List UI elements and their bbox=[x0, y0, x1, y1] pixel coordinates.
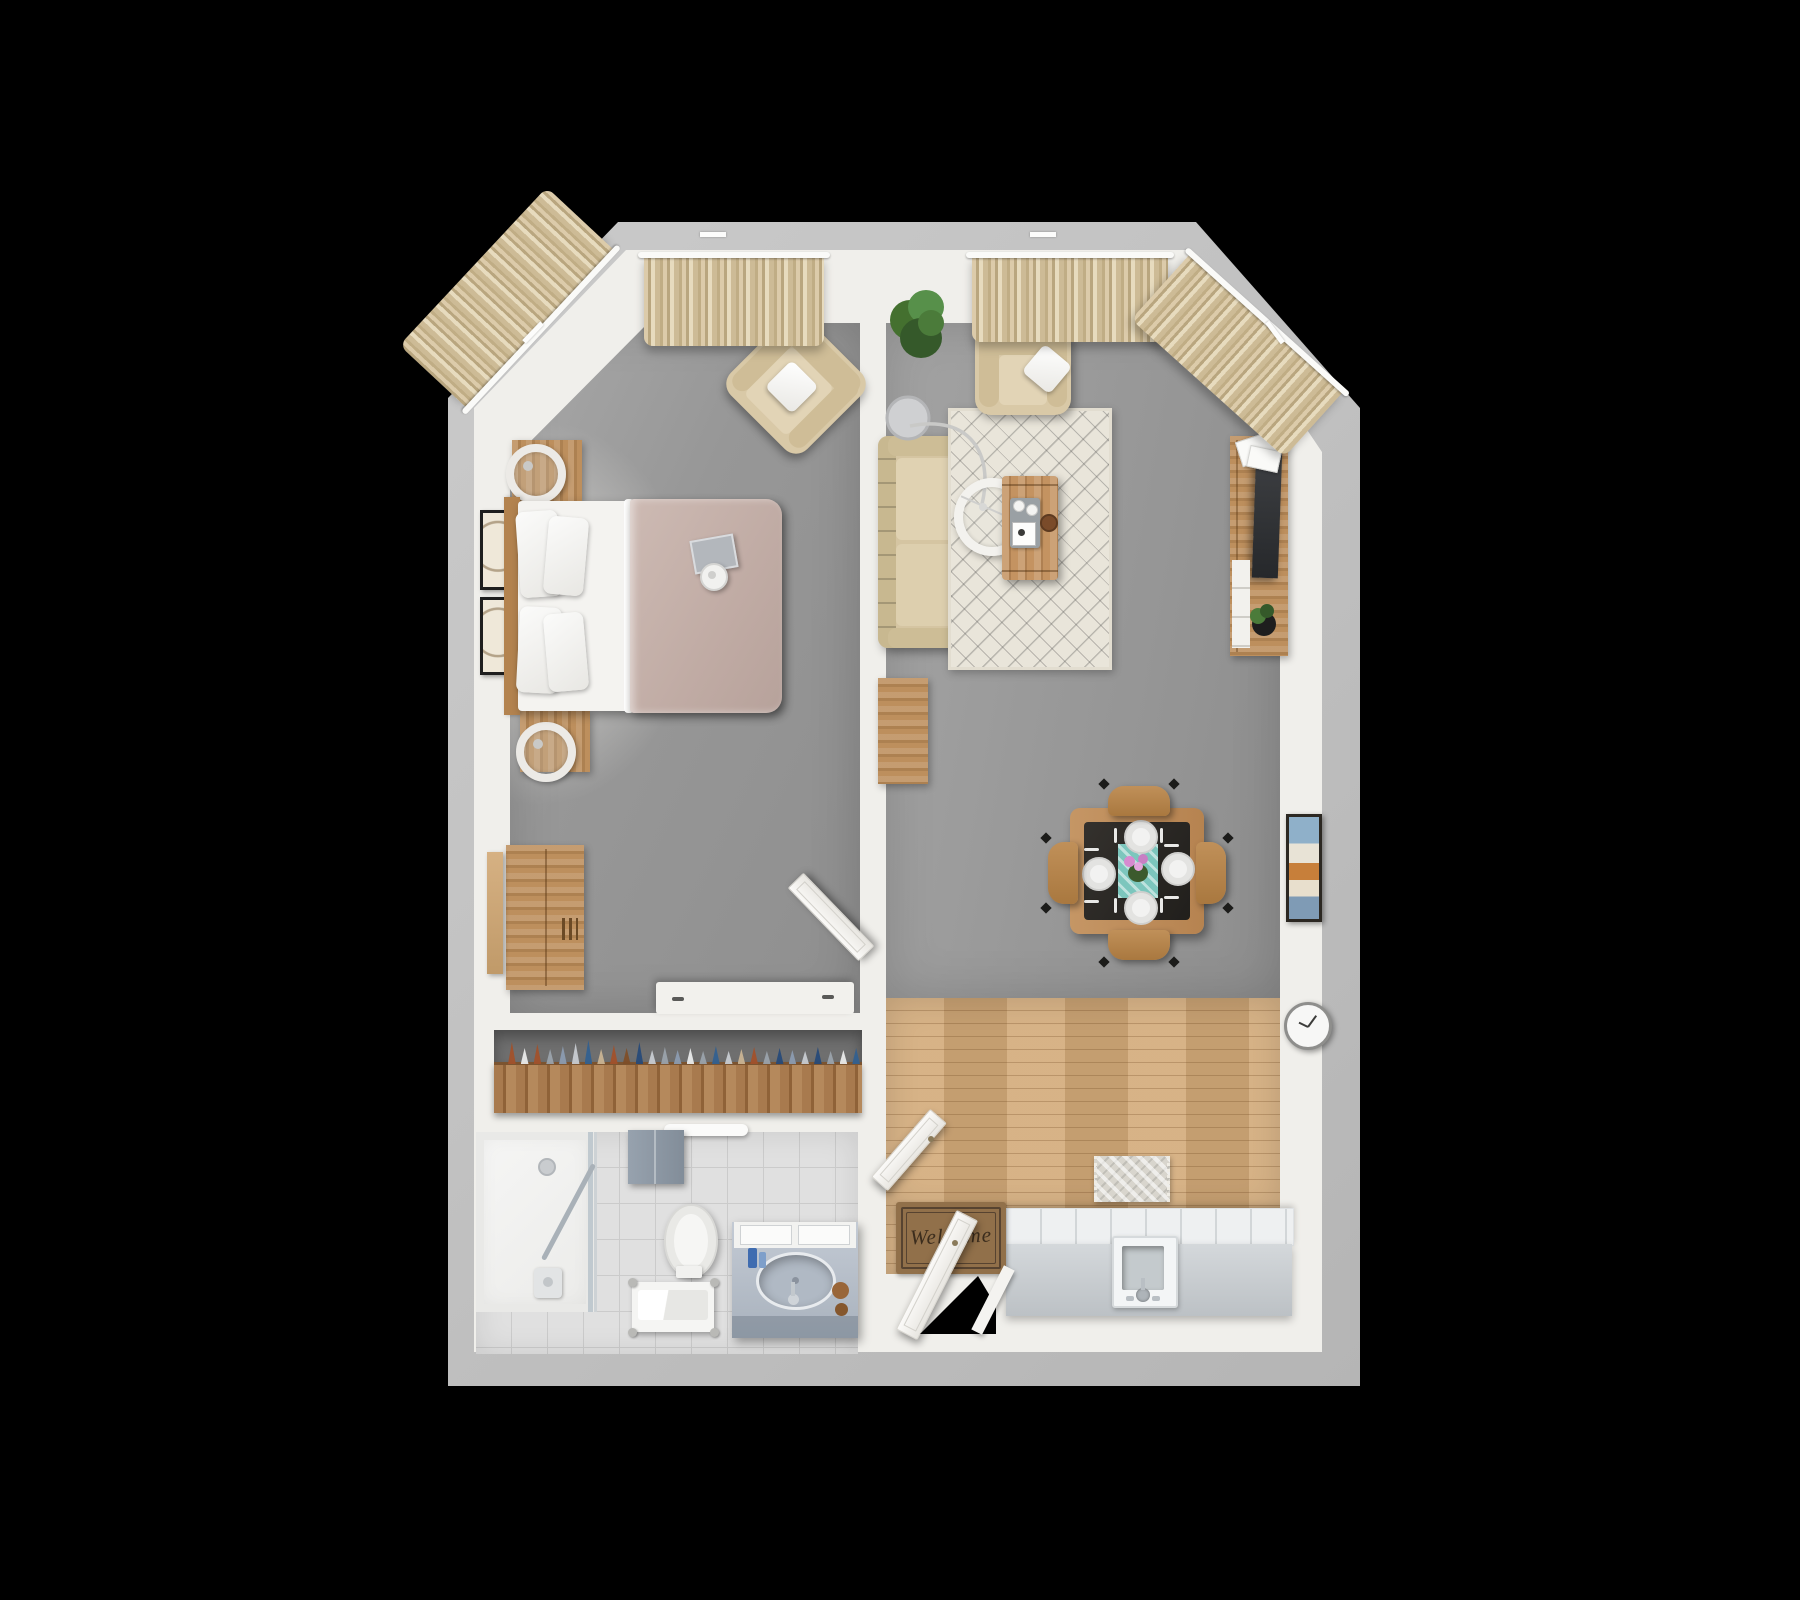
cutlery bbox=[1160, 828, 1163, 843]
dining-chair bbox=[1108, 786, 1170, 816]
tray-card bbox=[1012, 522, 1036, 546]
shower-mixer bbox=[534, 1268, 562, 1298]
shower-glass bbox=[588, 1132, 593, 1312]
wall-art-picture bbox=[1286, 814, 1322, 922]
pillow bbox=[543, 611, 590, 692]
leaning-mirror bbox=[487, 852, 503, 974]
dining-chair bbox=[1108, 930, 1170, 960]
dining-chair bbox=[1048, 842, 1078, 904]
cutlery bbox=[1084, 900, 1099, 903]
plate bbox=[1124, 820, 1158, 854]
flower-centerpiece bbox=[1122, 854, 1154, 888]
bathroom-jar bbox=[832, 1282, 849, 1299]
wardrobe-vents bbox=[562, 918, 578, 940]
curtains-living bbox=[972, 256, 1168, 342]
cutlery bbox=[1160, 898, 1163, 913]
clothes-hanger bbox=[852, 1048, 860, 1064]
clothes-hanger bbox=[750, 1047, 758, 1064]
door-handle bbox=[928, 1136, 934, 1142]
clothes-hanger bbox=[763, 1051, 771, 1064]
clothes-hanger bbox=[827, 1051, 835, 1064]
hanging-towel bbox=[628, 1130, 684, 1184]
toilet-hinge bbox=[676, 1266, 702, 1278]
clothes-hanger bbox=[661, 1047, 669, 1064]
clothes-hanger bbox=[789, 1050, 797, 1064]
cup bbox=[1013, 500, 1025, 512]
cutlery bbox=[1084, 848, 1099, 851]
faucet-handle bbox=[1152, 1296, 1160, 1301]
bench-leg bbox=[628, 1328, 637, 1337]
shower-head bbox=[538, 1158, 556, 1176]
plate bbox=[1161, 852, 1195, 886]
mug-on-bed bbox=[700, 563, 728, 591]
clothes-hanger bbox=[725, 1051, 733, 1064]
clothes-hanger bbox=[801, 1051, 809, 1064]
clothes-hanger bbox=[534, 1044, 542, 1064]
plant-leaves bbox=[1248, 604, 1278, 634]
clothes-hanger bbox=[814, 1047, 822, 1064]
clothes-hanger bbox=[508, 1042, 516, 1064]
clothes-hanger bbox=[585, 1040, 593, 1064]
floor-plan-stage: Welcome bbox=[0, 0, 1800, 1600]
cabinet-handle bbox=[672, 997, 684, 1001]
clothes-hanger bbox=[776, 1048, 784, 1064]
sink-faucet bbox=[1136, 1288, 1150, 1302]
door-handle bbox=[952, 1240, 958, 1246]
window-sill bbox=[1030, 232, 1056, 237]
bath-bench bbox=[632, 1282, 714, 1332]
clothes-hanger bbox=[648, 1050, 656, 1064]
side-desk bbox=[878, 678, 928, 784]
clothes-hangers bbox=[502, 1034, 866, 1064]
toiletry-bottle bbox=[759, 1252, 766, 1268]
potted-plant bbox=[884, 290, 950, 366]
clothes-hanger bbox=[712, 1046, 720, 1064]
vanity-tray bbox=[740, 1225, 792, 1245]
bedside-lamp bbox=[516, 722, 576, 782]
wall-clock bbox=[1284, 1002, 1332, 1050]
clothes-hanger bbox=[546, 1049, 554, 1064]
vanity-shelf bbox=[734, 1222, 856, 1248]
closet-shelf bbox=[494, 1062, 862, 1113]
bathroom-jar bbox=[835, 1303, 848, 1316]
plate bbox=[1082, 857, 1116, 891]
cabinet-handle bbox=[822, 995, 834, 999]
cutlery bbox=[1164, 844, 1179, 847]
toiletry-bottle bbox=[748, 1248, 757, 1268]
pillow bbox=[543, 515, 590, 596]
clothes-hanger bbox=[687, 1048, 695, 1064]
clothes-hanger bbox=[674, 1050, 682, 1064]
vanity-tray bbox=[798, 1225, 850, 1245]
plate bbox=[1124, 891, 1158, 925]
bedside-lamp bbox=[506, 444, 566, 504]
curtains-bedroom bbox=[644, 256, 824, 346]
clothes-hanger bbox=[597, 1049, 605, 1064]
cutlery bbox=[1164, 896, 1179, 899]
bench-leg bbox=[710, 1328, 719, 1337]
window-sill bbox=[700, 232, 726, 237]
clothes-hanger bbox=[738, 1049, 746, 1064]
coaster bbox=[1040, 514, 1058, 532]
clothes-hanger bbox=[699, 1051, 707, 1064]
vanity-faucet bbox=[788, 1294, 799, 1305]
bench-leg bbox=[710, 1278, 719, 1287]
faucet-handle bbox=[1126, 1296, 1134, 1301]
clothes-hanger bbox=[572, 1043, 580, 1064]
dining-chair bbox=[1196, 842, 1226, 904]
kitchen-wood-floor bbox=[886, 998, 1280, 1212]
bench-leg bbox=[628, 1278, 637, 1287]
kitchen-runner-rug bbox=[1094, 1156, 1170, 1202]
clothes-hanger bbox=[840, 1050, 848, 1064]
clothes-hanger bbox=[636, 1042, 644, 1064]
cutlery bbox=[1114, 898, 1117, 913]
duvet bbox=[630, 499, 782, 713]
clothes-hanger bbox=[559, 1046, 567, 1064]
cup bbox=[1026, 504, 1038, 516]
bed bbox=[504, 497, 784, 715]
clothes-hanger bbox=[521, 1048, 529, 1064]
clothes-hanger bbox=[623, 1048, 631, 1064]
cutlery bbox=[1114, 828, 1117, 843]
clothes-hanger bbox=[610, 1045, 618, 1064]
